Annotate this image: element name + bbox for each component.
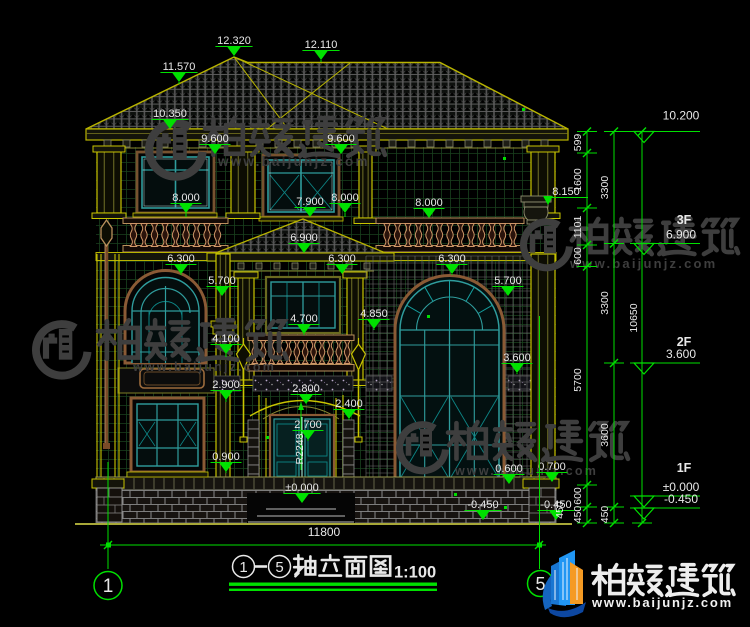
svg-text:600: 600 [572,247,584,265]
svg-text:3F: 3F [677,213,692,227]
svg-text:8.000: 8.000 [415,197,443,209]
svg-text:3300: 3300 [599,291,611,315]
svg-text:1: 1 [239,559,247,576]
svg-text:10650: 10650 [628,303,640,332]
svg-text:12.110: 12.110 [305,39,338,51]
svg-text:2.700: 2.700 [294,419,322,431]
svg-text:1: 1 [103,576,114,597]
svg-text:www.baijunjz.com: www.baijunjz.com [569,256,717,271]
svg-text:6.900: 6.900 [290,232,318,244]
svg-text:599: 599 [572,134,584,152]
svg-text:10.200: 10.200 [663,109,700,123]
svg-text:www.baijunjz.com: www.baijunjz.com [217,154,370,169]
svg-text:±0.000: ±0.000 [285,482,319,494]
svg-text:450: 450 [599,506,611,524]
svg-text:4.100: 4.100 [212,333,240,345]
svg-text:www.baijunjz.com: www.baijunjz.com [454,464,598,478]
svg-text:0.700: 0.700 [538,461,566,473]
svg-text:6.300: 6.300 [167,253,195,265]
svg-text:450: 450 [554,501,566,519]
svg-text:4.850: 4.850 [360,308,388,320]
svg-text:600: 600 [572,487,584,505]
svg-text:1:100: 1:100 [394,564,436,582]
svg-text:5700: 5700 [572,368,584,392]
svg-text:3300: 3300 [599,176,611,200]
svg-text:11.570: 11.570 [163,61,196,73]
svg-text:2.800: 2.800 [292,383,320,395]
svg-text:5.700: 5.700 [494,275,522,287]
svg-text:8.000: 8.000 [331,192,359,204]
svg-text:12.320: 12.320 [217,35,251,47]
svg-text:1101: 1101 [572,216,584,239]
svg-text:2.900: 2.900 [212,379,240,391]
svg-text:6.900: 6.900 [666,228,696,242]
svg-text:9.600: 9.600 [201,133,229,145]
svg-text:11800: 11800 [308,525,341,539]
svg-text:4.700: 4.700 [290,313,318,325]
svg-text:www.baijunjz.com: www.baijunjz.com [591,595,733,610]
svg-text:450: 450 [572,506,584,524]
svg-text:5.700: 5.700 [208,275,236,287]
svg-text:www.baijunjz.com: www.baijunjz.com [132,360,276,374]
svg-text:8.000: 8.000 [172,192,200,204]
svg-text:5: 5 [275,559,283,576]
svg-text:0.900: 0.900 [212,451,240,463]
svg-text:7.900: 7.900 [296,196,324,208]
svg-text:3.600: 3.600 [666,347,696,361]
svg-text:-0.450: -0.450 [664,492,698,506]
svg-text:R2248: R2248 [294,433,306,464]
svg-text:6.300: 6.300 [328,253,356,265]
svg-text:3600: 3600 [599,423,611,447]
svg-text:-0.450: -0.450 [467,499,498,511]
svg-text:6.300: 6.300 [438,253,466,265]
svg-text:9.600: 9.600 [327,133,355,145]
svg-text:1600: 1600 [572,168,584,192]
svg-text:1F: 1F [677,461,692,475]
svg-text:3.600: 3.600 [503,352,531,364]
svg-text:2.400: 2.400 [335,398,363,410]
svg-text:0.600: 0.600 [495,463,523,475]
svg-text:10.350: 10.350 [153,108,187,120]
